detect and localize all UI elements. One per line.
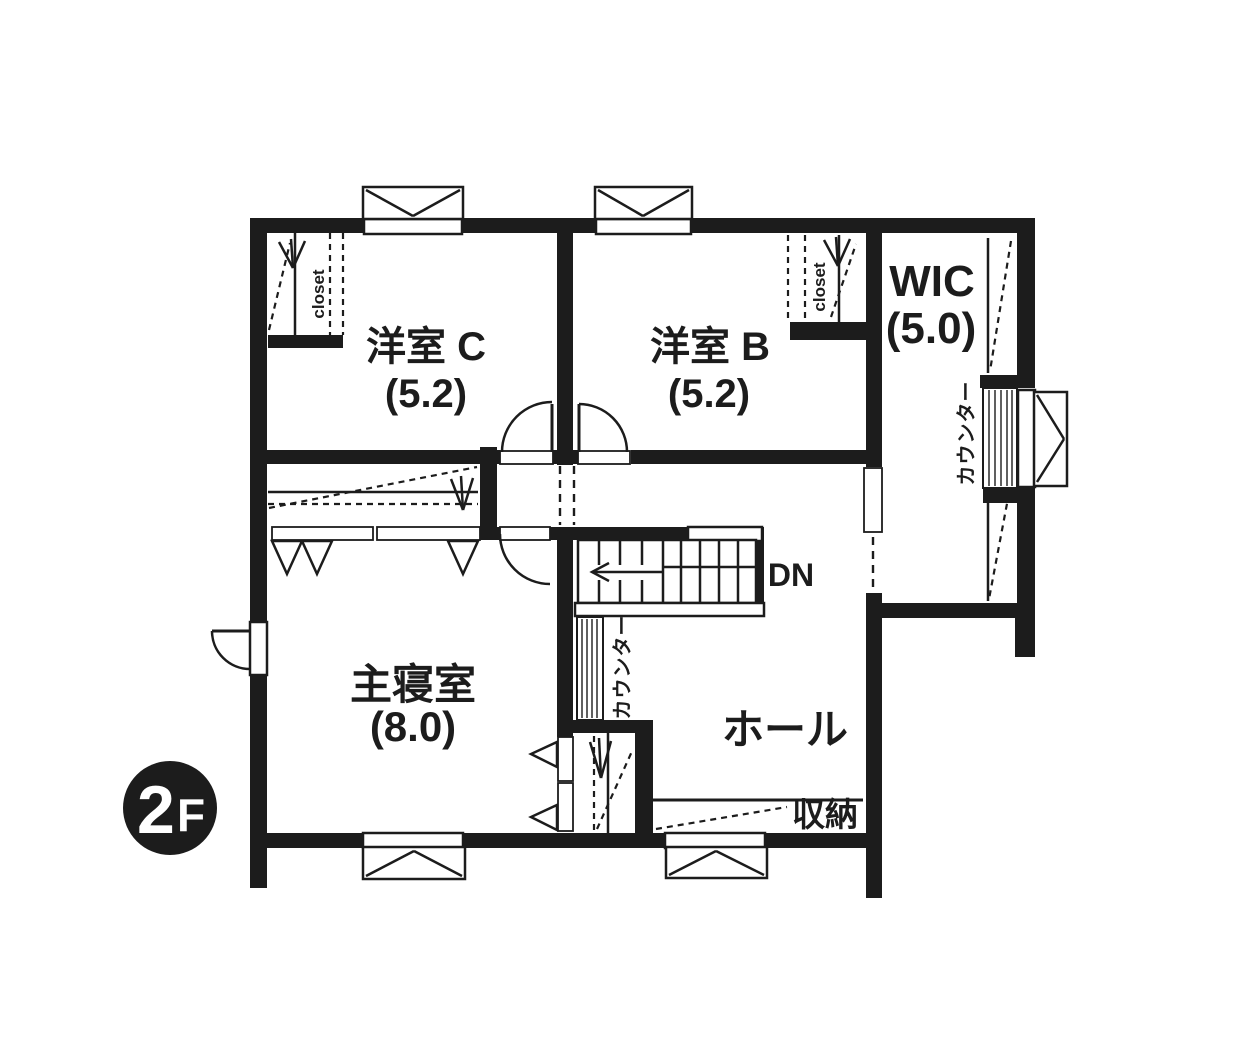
floor-badge-suffix: F [177, 789, 205, 841]
door-master-bedroom [500, 527, 550, 584]
stairs-down-label: DN [768, 557, 814, 593]
floor-badge-number: 2 [137, 772, 175, 848]
wic-shelving [983, 238, 1017, 601]
hanger-icon [824, 237, 850, 266]
sliding-door-wic [864, 467, 882, 593]
master-bedroom-lower-closet [531, 733, 633, 833]
master-bedroom-upper-closet [268, 467, 480, 574]
door-room-b [578, 404, 630, 464]
window-wic-right [1018, 390, 1067, 487]
bifold-door-icon [272, 541, 478, 574]
hall-counter [577, 617, 603, 720]
window-hall-bottom [665, 833, 767, 878]
wic-counter [983, 388, 1017, 488]
window-room-c-top [363, 187, 463, 234]
room-size-western-c: (5.2) [385, 372, 467, 416]
room-label-master-bedroom: 主寝室 [350, 661, 476, 708]
room-label-hall: ホール [722, 706, 848, 753]
closet-label-room-c: closet [309, 269, 328, 318]
counter-label-hall: カウンター [611, 615, 634, 720]
hanger-icon [279, 239, 305, 268]
staircase [575, 527, 764, 616]
window-room-b-top [595, 187, 692, 234]
floor-badge: 2 F [123, 761, 217, 855]
closet-label-room-b: closet [810, 262, 829, 311]
bifold-door-icon [531, 742, 557, 830]
corridor-opening [560, 466, 574, 525]
door-room-c [500, 402, 553, 464]
counter-label-wic: カウンター [955, 381, 978, 486]
storage-label: 収納 [792, 796, 858, 833]
closet-room-c [269, 233, 343, 335]
room-size-master-bedroom: (8.0) [370, 703, 456, 750]
room-label-western-c: 洋室 C [366, 325, 486, 369]
floor-plan-drawing: 洋室 C (5.2) 洋室 B (5.2) WIC (5.0) 主寝室 (8.0… [0, 0, 1250, 1048]
room-size-wic: (5.0) [886, 304, 976, 353]
room-label-western-b: 洋室 B [650, 325, 770, 369]
room-size-western-b: (5.2) [668, 372, 750, 416]
window-master-bedroom-bottom [363, 833, 465, 879]
window-master-bedroom-left [212, 622, 267, 675]
floor-plan-page: 洋室 C (5.2) 洋室 B (5.2) WIC (5.0) 主寝室 (8.0… [0, 0, 1250, 1048]
room-label-wic: WIC [889, 257, 975, 306]
